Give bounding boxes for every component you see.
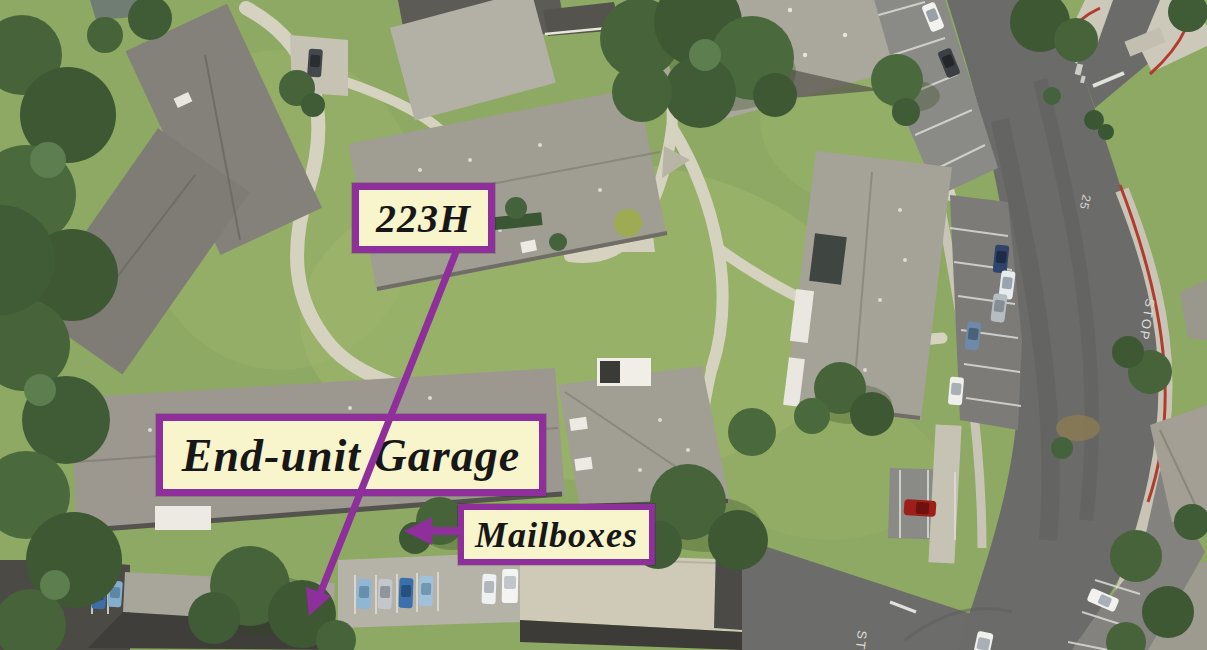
yellow-bush [614,209,642,237]
unit-number-label: 223H [352,183,495,253]
aerial-photo-scene: STOP 25 STOP [0,0,1207,650]
mailboxes-label: Mailboxes [458,504,655,565]
utility-structure [155,506,211,530]
end-unit-garage-label: End-unit Garage [156,414,546,496]
unit-number-text: 223H [376,195,471,242]
white-van [502,569,519,603]
solar-panels [809,233,847,285]
red-car [903,499,936,517]
mailboxes-text: Mailboxes [475,514,638,556]
end-unit-garage-text: End-unit Garage [182,429,520,482]
